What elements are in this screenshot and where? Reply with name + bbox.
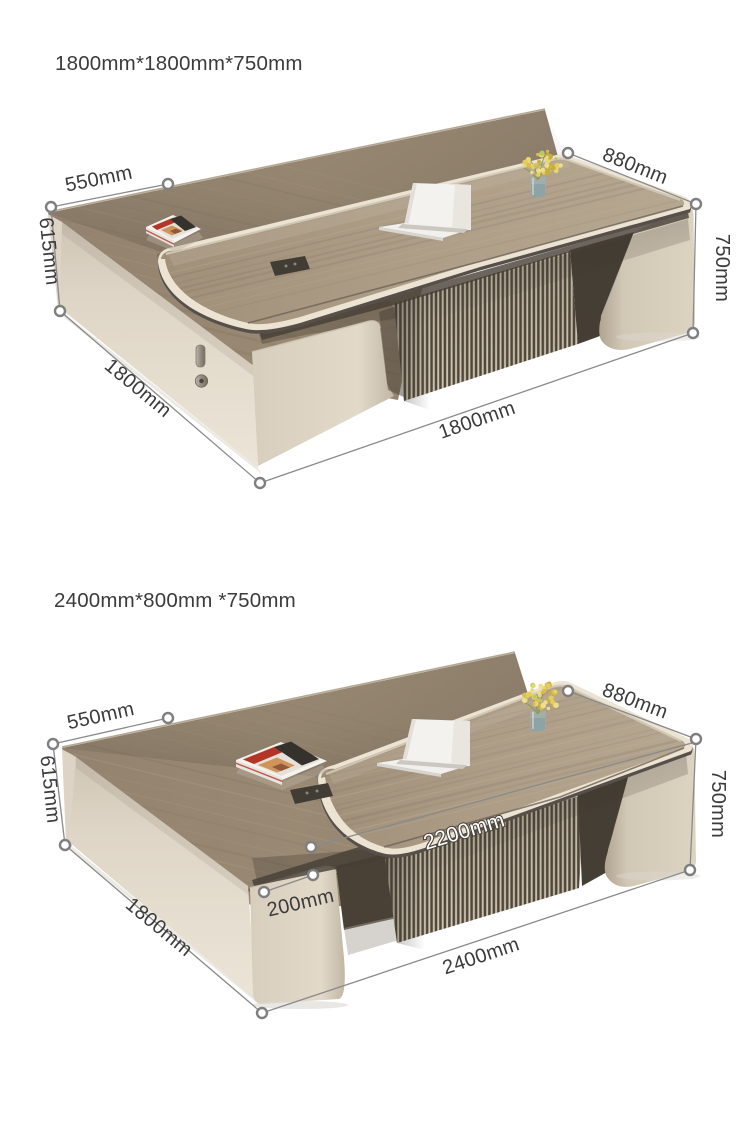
svg-text:1800mm: 1800mm bbox=[436, 397, 518, 444]
svg-text:550mm: 550mm bbox=[65, 698, 136, 734]
svg-text:750mm: 750mm bbox=[707, 770, 729, 838]
svg-text:750mm: 750mm bbox=[711, 234, 733, 302]
svg-text:550mm: 550mm bbox=[63, 162, 134, 197]
svg-text:615mm: 615mm bbox=[35, 754, 64, 824]
